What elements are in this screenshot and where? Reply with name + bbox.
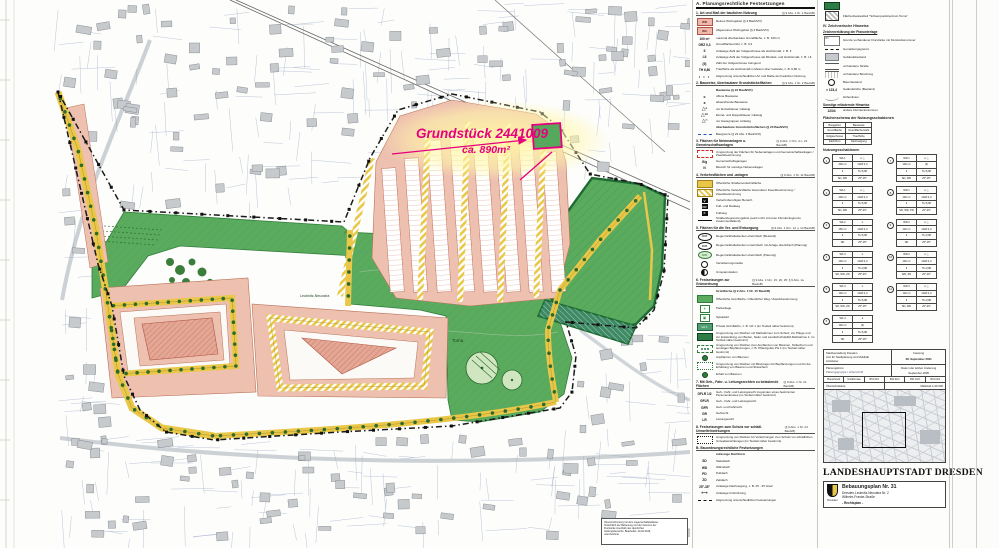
legend-swatch-cell: PD — [696, 472, 713, 476]
text-swatch: II — [704, 49, 706, 53]
legend-item-label: Zeltdach — [716, 479, 728, 482]
schablone-cell: SD — [833, 336, 853, 343]
schablone-cell: II — [897, 233, 917, 240]
legend-item: Umgrenzung von Flächen zum Anpflanzen vo… — [696, 344, 815, 354]
legend-item: zulässige Dachform — [696, 453, 815, 458]
schablone-cell: 130 m² — [833, 290, 853, 297]
sheet-edge-line — [976, 0, 977, 548]
dots-swatch: • • • — [699, 74, 710, 79]
schablone-number: 4 — [823, 254, 830, 261]
schablone-cell: TH 6,80 — [853, 233, 873, 240]
legend-item-label: Regenrückhaltebecken oberirdisch (Planun… — [716, 254, 776, 257]
stamp-archive-cell: B31 61/3 — [905, 377, 925, 382]
schablone-cell: o — [853, 283, 873, 290]
legend-swatch-cell — [823, 94, 840, 101]
legend-item: RRBRegenrückhaltebecken oberirdisch (Bes… — [696, 233, 815, 241]
schablone-cell: 150 m² — [833, 226, 853, 233]
legend-item-label: Umgrenzung von Flächen mit Bindungen für… — [716, 363, 815, 370]
schablone-number: 1 — [823, 157, 830, 164]
road2-swatch — [825, 63, 839, 70]
legend-section: 5. Flächen für die Ver- und Entsorgung(§… — [696, 226, 815, 276]
label-torna: Torna — [452, 338, 464, 343]
legend-item-label: Regenrückhaltebecken oberirdisch (Bestan… — [716, 235, 776, 238]
legend-section-title: B. Bauordnungsrechtliche Festsetzungen — [696, 446, 815, 451]
schablone-cell: 20°-45° — [917, 207, 937, 214]
legend-item-label: Straßenbegrenzungslinie (auch nicht mit … — [716, 217, 815, 224]
legend-swatch-cell — [696, 355, 713, 361]
schablone-cell: II — [833, 329, 853, 336]
nutzungsschablone: 11WR 3o △120 m²GRZ 0,3IITH 3,80SD, WD20°… — [887, 283, 937, 311]
schablone-cell: SD, WD — [833, 207, 853, 214]
legend-item: Gebäudebestand — [823, 53, 946, 61]
contour-swatch — [825, 94, 839, 101]
legend-swatch-cell: GFLR — [696, 399, 713, 403]
legend-item-label: Fuß- und Radweg — [716, 205, 740, 208]
schablone-cell: SD — [833, 239, 853, 246]
plan-title: Bebauungsplan Nr. 31 — [842, 484, 943, 490]
text-swatch: ZD — [702, 478, 706, 482]
legend-swatch-cell: TH 6,80 — [696, 68, 713, 72]
legend-item: Grünfläche (§ 9 Abs. 1 Nr. 15 BauGB) — [696, 289, 815, 294]
legend-item: GFLR 1/2Geh-, Fahr- und Leitungsrecht zu… — [696, 391, 815, 398]
schablone-cell: WR 3 — [897, 283, 917, 290]
plan-subtitle-2: Wilhelm-Franke-Straße — [842, 495, 943, 499]
schablone-cell: SD — [897, 239, 917, 246]
legend-swatch-cell: RRB — [696, 242, 713, 250]
legend-item: VVerkehrsberuhigter Bereich — [696, 198, 815, 203]
stamp-office: Stadtverwaltung Dresden Amt für Stadtpla… — [824, 350, 892, 364]
text-swatch: (II) — [703, 62, 707, 66]
text-swatch: GRZ 0,3 — [698, 43, 710, 47]
legend-item: ⟷zulässige Firstrichtung — [696, 490, 815, 496]
legend-item: ooffene Bauweise — [696, 94, 815, 99]
legend-item-label: Zahl der Vollgeschosse zwingend — [716, 62, 761, 65]
legend-swatch-cell: RRB — [696, 251, 713, 259]
schablone-number: 5 — [823, 286, 830, 293]
nutzungsschablone: 10WR 2o △130 m²GRZ 0,3IITH 3,80WD, ZD20°… — [887, 251, 937, 279]
schablone-cell: GRZ 0,3 — [917, 194, 937, 201]
schablone-number: 2 — [823, 189, 830, 196]
legend-item: WDWalmdach — [696, 465, 815, 470]
legend-item: Abgrenzung unterschiedlicher Festsetzung… — [696, 498, 815, 503]
legend-swatch-cell: N — [696, 166, 713, 170]
legend-item-label: Regenrückhaltebecken unterirdisch mit An… — [716, 244, 807, 247]
legend-swatch-cell — [696, 345, 713, 353]
legend-section-title: 1. Art und Maß der baulichen Nutzung(§ 9… — [696, 11, 815, 16]
schablone-cell: SD, WD — [833, 175, 853, 182]
text-swatch: GR — [702, 412, 707, 416]
legend-item-label: Geh-, Fahr- und Leitungsrecht zugunsten … — [716, 391, 815, 398]
bluedash-swatch — [698, 134, 712, 135]
schablone-cell: TH 6,80 — [853, 297, 873, 304]
legend-item-label: Walmdach — [716, 466, 730, 469]
legend-item: GRGehrecht — [696, 411, 815, 416]
legend-item-label: Gehrecht — [716, 412, 728, 415]
legend-swatch-cell: SD — [696, 459, 713, 463]
schablone-cell: 100 m² — [897, 162, 917, 169]
legend-item: Öffentliche Verkehrsfläche besonderer Zw… — [696, 189, 815, 197]
badge-swatch: F — [702, 211, 708, 216]
schablone-cell: o △ — [853, 187, 873, 194]
schablone-cell: 130 m² — [897, 258, 917, 265]
text-swatch: GFR — [701, 406, 708, 410]
schablone-cell: II — [833, 265, 853, 272]
legend-swatch-cell: WD — [696, 466, 713, 470]
legend-item: 25°-35°zulässige Dachneigung, z. B. 25 -… — [696, 484, 815, 489]
legend-item: RRBRegenrückhaltebecken unterirdisch mit… — [696, 242, 815, 250]
schablone-cell: 20°-45° — [917, 304, 937, 311]
legend-swatch-cell: 123 — [823, 36, 840, 46]
legend-section-title: 5. Flächen für die Ver- und Entsorgung(§… — [696, 226, 815, 231]
oval-swatch: RRB — [698, 233, 712, 241]
legend-swatch-cell — [696, 150, 713, 158]
ovalg-swatch: RRB — [698, 251, 712, 259]
stamp-archive-cell: Planschrank — [824, 377, 844, 382]
schablone-cell: WR 2 — [897, 219, 917, 226]
schablone-number: 9 — [887, 222, 894, 229]
legend-swatch-cell — [823, 71, 840, 78]
legend-item: △Hnur Hausgruppen zulässig — [696, 119, 815, 124]
legend-item: 100 m²maximal überbaubare Grundfläche, z… — [696, 36, 815, 41]
schablone-cell: II — [833, 168, 853, 175]
schablone-cell: SD, WD — [897, 304, 917, 311]
legend-swatch-cell — [696, 500, 713, 501]
legend-swatch-cell: G/g — [696, 160, 713, 164]
legend-item: Umgrenzung von Flächen mit Bindungen für… — [696, 362, 815, 370]
stamp-archive-cell: B31 61/4 — [926, 377, 945, 382]
legend-item-label: Parkanlage — [716, 307, 731, 310]
schablone-cell: WA 1 — [833, 155, 853, 162]
legend-swatch-cell: FR — [696, 204, 713, 209]
nutzungsschablone: 8WR 1o △130 m²GRZ 0,3IITH 6,80SD, WD, PD… — [887, 186, 937, 214]
schablone-cell: II — [897, 200, 917, 207]
legend-swatch-cell: 100 m² — [696, 37, 713, 41]
legend-item-label: nur Hausgruppen zulässig — [716, 120, 751, 123]
legend-section-title: 2. Bauweise, überbaubare Grundstücksfläc… — [696, 81, 815, 86]
schablone-cell: II — [897, 297, 917, 304]
text-swatch: LR — [702, 418, 706, 422]
schablone-cell: TH 6,80 — [917, 200, 937, 207]
legend-swatch-cell — [696, 261, 713, 268]
stamp-archive-cell: B31 61/2 — [885, 377, 905, 382]
legend-item: △Enur Einzelhäuser zulässig — [696, 107, 815, 112]
legend-item: Versickerungsmulde — [696, 261, 815, 268]
schablone-cell: o △ — [853, 155, 873, 162]
schablone-cell: 25°-35° — [853, 239, 873, 246]
legend-section: 8. Festsetzungen zum Schutz vor schädl. … — [696, 425, 815, 444]
schablone-cell: 200 m² — [833, 194, 853, 201]
nutzungsschablone: 1WA 1o △200 m²GRZ 0,3IITH 6,80SD, WD25°-… — [823, 154, 873, 182]
legend-item-label: Anpflanzen von Bäumen — [716, 356, 749, 359]
emgreen-swatch — [824, 2, 840, 10]
schablone-cell: GRZ 0,3 — [917, 290, 937, 297]
envbox-swatch — [697, 436, 713, 444]
schablone-cell: 25°-35° — [853, 175, 873, 182]
legend-swatch-cell — [696, 295, 713, 303]
schablone-cell: o △ — [917, 283, 937, 290]
schablone-cell: GRZ 0,3 — [853, 290, 873, 297]
schablone-cell: GRZ 0,3 — [853, 162, 873, 169]
legend-swatch-cell — [696, 362, 713, 370]
legend-swatch-cell: ⚘ — [696, 305, 713, 313]
legend-item — [823, 2, 946, 10]
legend-swatch-cell: 123/4 — [823, 109, 840, 113]
legend-item: Bauweise (§ 22 BauNVO) — [696, 88, 815, 93]
schablone-cell: GRZ 0,3 — [917, 258, 937, 265]
legend-item-label: Fußweg — [716, 212, 727, 215]
schablone-cell: o △ — [917, 187, 937, 194]
legend-item-label: Spielplatz — [716, 316, 729, 319]
schablone-cell: SD, WD, PD — [897, 207, 917, 214]
nutzungsschablone: 7WR 1o △100 m²(II)IITH 6,80SD, WD25°-35° — [887, 154, 937, 182]
schablone-cell: 130 m² — [833, 258, 853, 265]
legend-swatch-cell: • • • — [696, 74, 713, 79]
legend-item: FFußweg — [696, 211, 815, 216]
legend-section: 2. Bauweise, überbaubare Grundstücksfläc… — [696, 81, 815, 137]
circ-swatch — [701, 269, 708, 276]
legend-swatch-cell: RRB — [696, 233, 713, 241]
legend-item: Umgrenzung der Flächen für Nebenanlagen … — [696, 150, 815, 158]
legend-item-label: vorhandene Straße — [843, 65, 869, 68]
schablone-cell: o — [853, 251, 873, 258]
schablone-cell: GRZ 0,3 — [853, 258, 873, 265]
schablone-cell: 25°-45° — [853, 207, 873, 214]
slope-swatch — [825, 71, 839, 78]
crest-shield-icon — [827, 484, 838, 497]
schablone-cell: 25°-35° — [917, 239, 937, 246]
dashdot-swatch — [825, 49, 839, 50]
legend-item-label: zulässige Dachform — [716, 453, 745, 456]
plan-map: Torna Leubnitz-Neuostra Grundstück 24410… — [0, 0, 690, 548]
hinweise-title: IV. Zeichnerische Hinweise — [823, 24, 946, 28]
legend-item: G/gGemeinschaftsgaragen — [696, 159, 815, 164]
legend-section: 1. Art und Maß der baulichen Nutzung(§ 9… — [696, 11, 815, 79]
legend-swatch-cell — [696, 220, 713, 221]
legend-column-notes: Flächenbestandteil "Schwerpunktzentrum T… — [820, 0, 950, 548]
legend-section: 7. Mit Geh-, Fahr- u. Leitungsrechten zu… — [696, 380, 815, 422]
park-swatch: ⚘ — [700, 305, 710, 313]
overview-map — [824, 389, 945, 462]
parcel-swatch: 123 — [824, 36, 840, 46]
legend-item-label: Geh-, Fahr- und Leitungsrecht — [716, 400, 756, 403]
legend-swatch-cell — [696, 436, 713, 444]
plan-sheet: Torna Leubnitz-Neuostra Grundstück 24410… — [0, 0, 999, 548]
text-swatch: a — [704, 101, 706, 105]
stamp-block: Stadtverwaltung Dresden Amt für Stadtpla… — [823, 349, 946, 463]
schema-title: Flächenschema der Nutzungsschablonen — [823, 116, 946, 120]
legend-item-label: abweichende Bauweise — [716, 101, 748, 104]
legend-swatch-cell: GRZ 0,3 — [696, 43, 713, 47]
legend-item: LRLeitungsrecht — [696, 418, 815, 423]
legend-swatch-cell — [696, 269, 713, 276]
parcel-annotation: Grundstück 2441009 ca. 890m² — [380, 100, 610, 180]
legend-item: GFLRGeh-, Fahr- und Leitungsrecht — [696, 399, 815, 404]
conformity-note: Übereinstimmung mit dem Liegenschaftskat… — [601, 518, 688, 545]
pink-swatch: WR — [697, 18, 713, 26]
legend-item: I-IIzulässige Zahl der Vollgeschosse als… — [696, 55, 815, 60]
legend-item-label: Allgemeines Wohngebiet (§ 4 BauNVO) — [716, 29, 769, 32]
legend-item: Umgrenzung von Flächen für Vorkehrungen … — [696, 436, 815, 444]
bindbox-swatch — [697, 362, 713, 370]
schablone-cell: o △ — [917, 155, 937, 162]
legend-item: Öffentliche Grünfläche / öffentlicher We… — [696, 295, 815, 303]
legend-swatch-cell — [823, 63, 840, 70]
legend-item: vorhandene Straße — [823, 63, 946, 70]
schablone-cell: WA 2 — [833, 219, 853, 226]
text-swatch: o — [704, 95, 706, 99]
text-swatch: TH 6,80 — [699, 68, 710, 72]
legend-swatch-cell — [696, 134, 713, 135]
orange-swatch — [697, 180, 713, 188]
legend-item-label: maximal überbaubare Grundfläche, z. B. 1… — [716, 37, 780, 40]
legend-swatch-cell: I-II — [696, 55, 713, 59]
legend-item: vorhandene Böschung — [823, 71, 946, 78]
legend-swatch-cell: F — [696, 211, 713, 216]
legend-item-label: Satteldach — [716, 460, 730, 463]
tri-swatch: △E — [702, 107, 707, 112]
dot-swatch — [702, 355, 708, 361]
legend-item-label: Höhenlinien — [843, 96, 859, 99]
nutzungsschablonen-title: Nutzungsschablonen — [823, 148, 946, 152]
text-swatch: GFLR 1/2 — [698, 392, 712, 396]
legend-swatch-cell — [823, 49, 840, 50]
schablone-cell: TH 3,80 — [853, 265, 873, 272]
nutzungsschablone: 4WA 3o130 m²GRZ 0,3IITH 3,80SD, WD, ZD25… — [823, 251, 873, 279]
legend-item-label: Private Grünfläche, z. B. GF 1 (im Textt… — [716, 325, 794, 328]
legend-item: Umgrenzung von Flächen mit Maßnahmen zum… — [696, 332, 815, 342]
legend-item: SDSatteldach — [696, 459, 815, 464]
schablone-cell: SD, WD, ZD — [833, 304, 853, 311]
schablone-number: 3 — [823, 222, 830, 229]
stamp-fassung: Fassung 28. September 2021 — [892, 350, 945, 364]
legend-section-title: 7. Mit Geh-, Fahr- u. Leitungsrechten zu… — [696, 380, 815, 389]
legend-swatch-cell — [823, 79, 840, 86]
legend-item-label: zulässige Zahl der Vollgeschosse als Höc… — [716, 50, 791, 53]
legend-item: ▣Spielplatz — [696, 314, 815, 322]
legend-item-label: Baugrenze (§ 23 Abs. 3 BauNVO) — [716, 133, 761, 136]
schablone-cell: o △ — [917, 251, 937, 258]
oval-swatch: RRB — [698, 242, 712, 250]
legend-item: TH 6,80Traufhöhe als Höchstmaß in Metern… — [696, 68, 815, 73]
schablone-cell: SD, WD, ZD — [833, 271, 853, 278]
text-swatch: N — [703, 166, 705, 170]
legend-item: PDPultdach — [696, 472, 815, 477]
legend-item: 123Grenze vorhandener Flurstücke mit Flu… — [823, 36, 946, 46]
legend-swatch-cell — [823, 2, 840, 10]
schablone-cell: GRZ 0,3 — [853, 194, 873, 201]
legend-item: Öffentliche Straßenverkehrsfläche — [696, 180, 815, 188]
legend-item-label: Umgrenzung der Flächen für Nebenanlagen … — [716, 151, 815, 158]
legend-section-title: 3. Flächen für Nebenanlagen u. Gemeinsch… — [696, 139, 815, 148]
schablone-cell: 25°-35° — [853, 336, 873, 343]
hinweise-subtitle2: Sonstige erläuternde Hinweise — [823, 103, 946, 107]
legend-item-label: Grundflächenzahl, z. B. 0,3 — [716, 43, 752, 46]
legend-item: Umspannstation — [696, 269, 815, 276]
legend-item-label: zulässige Zahl der Vollgeschosse als Min… — [716, 56, 811, 59]
schablone-cell: 25°-35° — [853, 304, 873, 311]
legend-swatch-cell: LR — [696, 418, 713, 422]
schablone-cell: TH 3,80 — [917, 233, 937, 240]
schablone-cell: a — [853, 315, 873, 322]
crest-caption: Dresden — [827, 498, 838, 502]
nutzungsschablone: 6WA 4a130 m²(II)IITH 6,80SD25°-35° — [823, 315, 873, 343]
legend-swatch-cell: II — [696, 49, 713, 53]
legend-item-label: Pultdach — [716, 472, 728, 475]
legend-item: WAAllgemeines Wohngebiet (§ 4 BauNVO) — [696, 27, 815, 35]
legend-item-label: Einzel- und Doppelhäuser zulässig — [716, 114, 762, 117]
legend-item: (II)Zahl der Vollgeschosse zwingend — [696, 61, 815, 66]
schablone-cell: TH 6,80 — [853, 200, 873, 207]
legend-item: Baumbestand — [823, 79, 946, 86]
sheet-edge-line — [952, 0, 953, 548]
tri-swatch: △ED — [701, 113, 708, 118]
legend-item-label: Öffentliche Verkehrsfläche besonderer Zw… — [716, 189, 815, 196]
text-swatch: 25°-35° — [699, 485, 710, 489]
schema-cell: Dachform — [824, 139, 846, 145]
pink-swatch: WA — [697, 27, 713, 35]
legend-section: B. Bauordnungsrechtliche Festsetzungenzu… — [696, 446, 815, 503]
dot-swatch — [702, 372, 708, 378]
text-swatch: PD — [702, 472, 706, 476]
schablone-cell: 130 m² — [833, 322, 853, 329]
legend-swatch-cell — [696, 333, 713, 341]
legend-item-label: Versickerungsmulde — [716, 262, 743, 265]
legend-item-label: Bauweise (§ 22 BauNVO) — [716, 89, 753, 92]
legend-item: ⚘Parkanlage — [696, 305, 815, 313]
legend-section-title: 8. Festsetzungen zum Schutz vor schädl. … — [696, 425, 815, 434]
schablone-cell: TH 6,80 — [917, 168, 937, 175]
legend-item-label: Grünfläche (§ 9 Abs. 1 Nr. 15 BauGB) — [716, 290, 770, 293]
schablone-cell: 120 m² — [897, 226, 917, 233]
circ2-swatch — [828, 79, 835, 86]
legend-item-label: Umgrenzung von Flächen für Vorkehrungen … — [716, 436, 815, 443]
text-swatch: 123/4 — [828, 109, 836, 113]
schablone-cell: 20°-30° — [917, 271, 937, 278]
stripes-swatch — [697, 189, 713, 197]
dresden-crest: Dresden — [826, 484, 839, 505]
text-swatch: SD — [702, 459, 706, 463]
legend-swatch-cell — [696, 372, 713, 378]
legend-swatch-cell: 25°-35° — [696, 485, 713, 489]
schablone-cell: WA 4 — [833, 315, 853, 322]
legend-swatch-cell: GF 1 — [696, 323, 713, 331]
schablone-cell: (II) — [853, 322, 873, 329]
legend-item-label: Gebäudebestand — [843, 56, 866, 59]
schablone-number: 11 — [887, 286, 894, 293]
legend-item-label: Bereich für sonstige Nebenanlagen — [716, 166, 763, 169]
schablone-cell: WR 1 — [897, 155, 917, 162]
legend-item-label: Öffentliche Straßenverkehrsfläche — [716, 182, 761, 185]
circ2-swatch — [701, 261, 708, 268]
legend-item: Höhenlinien — [823, 94, 946, 101]
legend-item: überbaubare Grundstücksflächen (§ 23 Bau… — [696, 126, 815, 131]
badge-swatch: FR — [702, 204, 708, 209]
legend-item-label: Baumbestand — [843, 81, 862, 84]
schema-table: BaugebietBauweiseGrundflächeGrundflächen… — [823, 122, 872, 145]
annotation-area: ca. 890m² — [462, 144, 510, 156]
city-title: LANDESHAUPTSTADT DRESDEN — [823, 467, 946, 478]
legend-swatch-cell: WA — [696, 27, 713, 35]
emgreen-swatch — [697, 333, 713, 341]
stamp-buero: Planungsbüro: Planungsgruppe / Unterschr… — [824, 365, 892, 376]
legend-item: WRReines Wohngebiet (§ 3 BauNVO) — [696, 18, 815, 26]
overview-boundary — [862, 412, 906, 448]
schablone-cell: TH 3,80 — [917, 297, 937, 304]
legend-item-label: Traufhöhe als Höchstmaß in Metern über G… — [716, 68, 800, 71]
legend-column-settings: A. Planungsrechtliche Festsetzungen 1. A… — [692, 0, 818, 548]
schablone-cell: 200 m² — [833, 162, 853, 169]
legend-item-label: vorhandene Böschung — [843, 73, 873, 76]
